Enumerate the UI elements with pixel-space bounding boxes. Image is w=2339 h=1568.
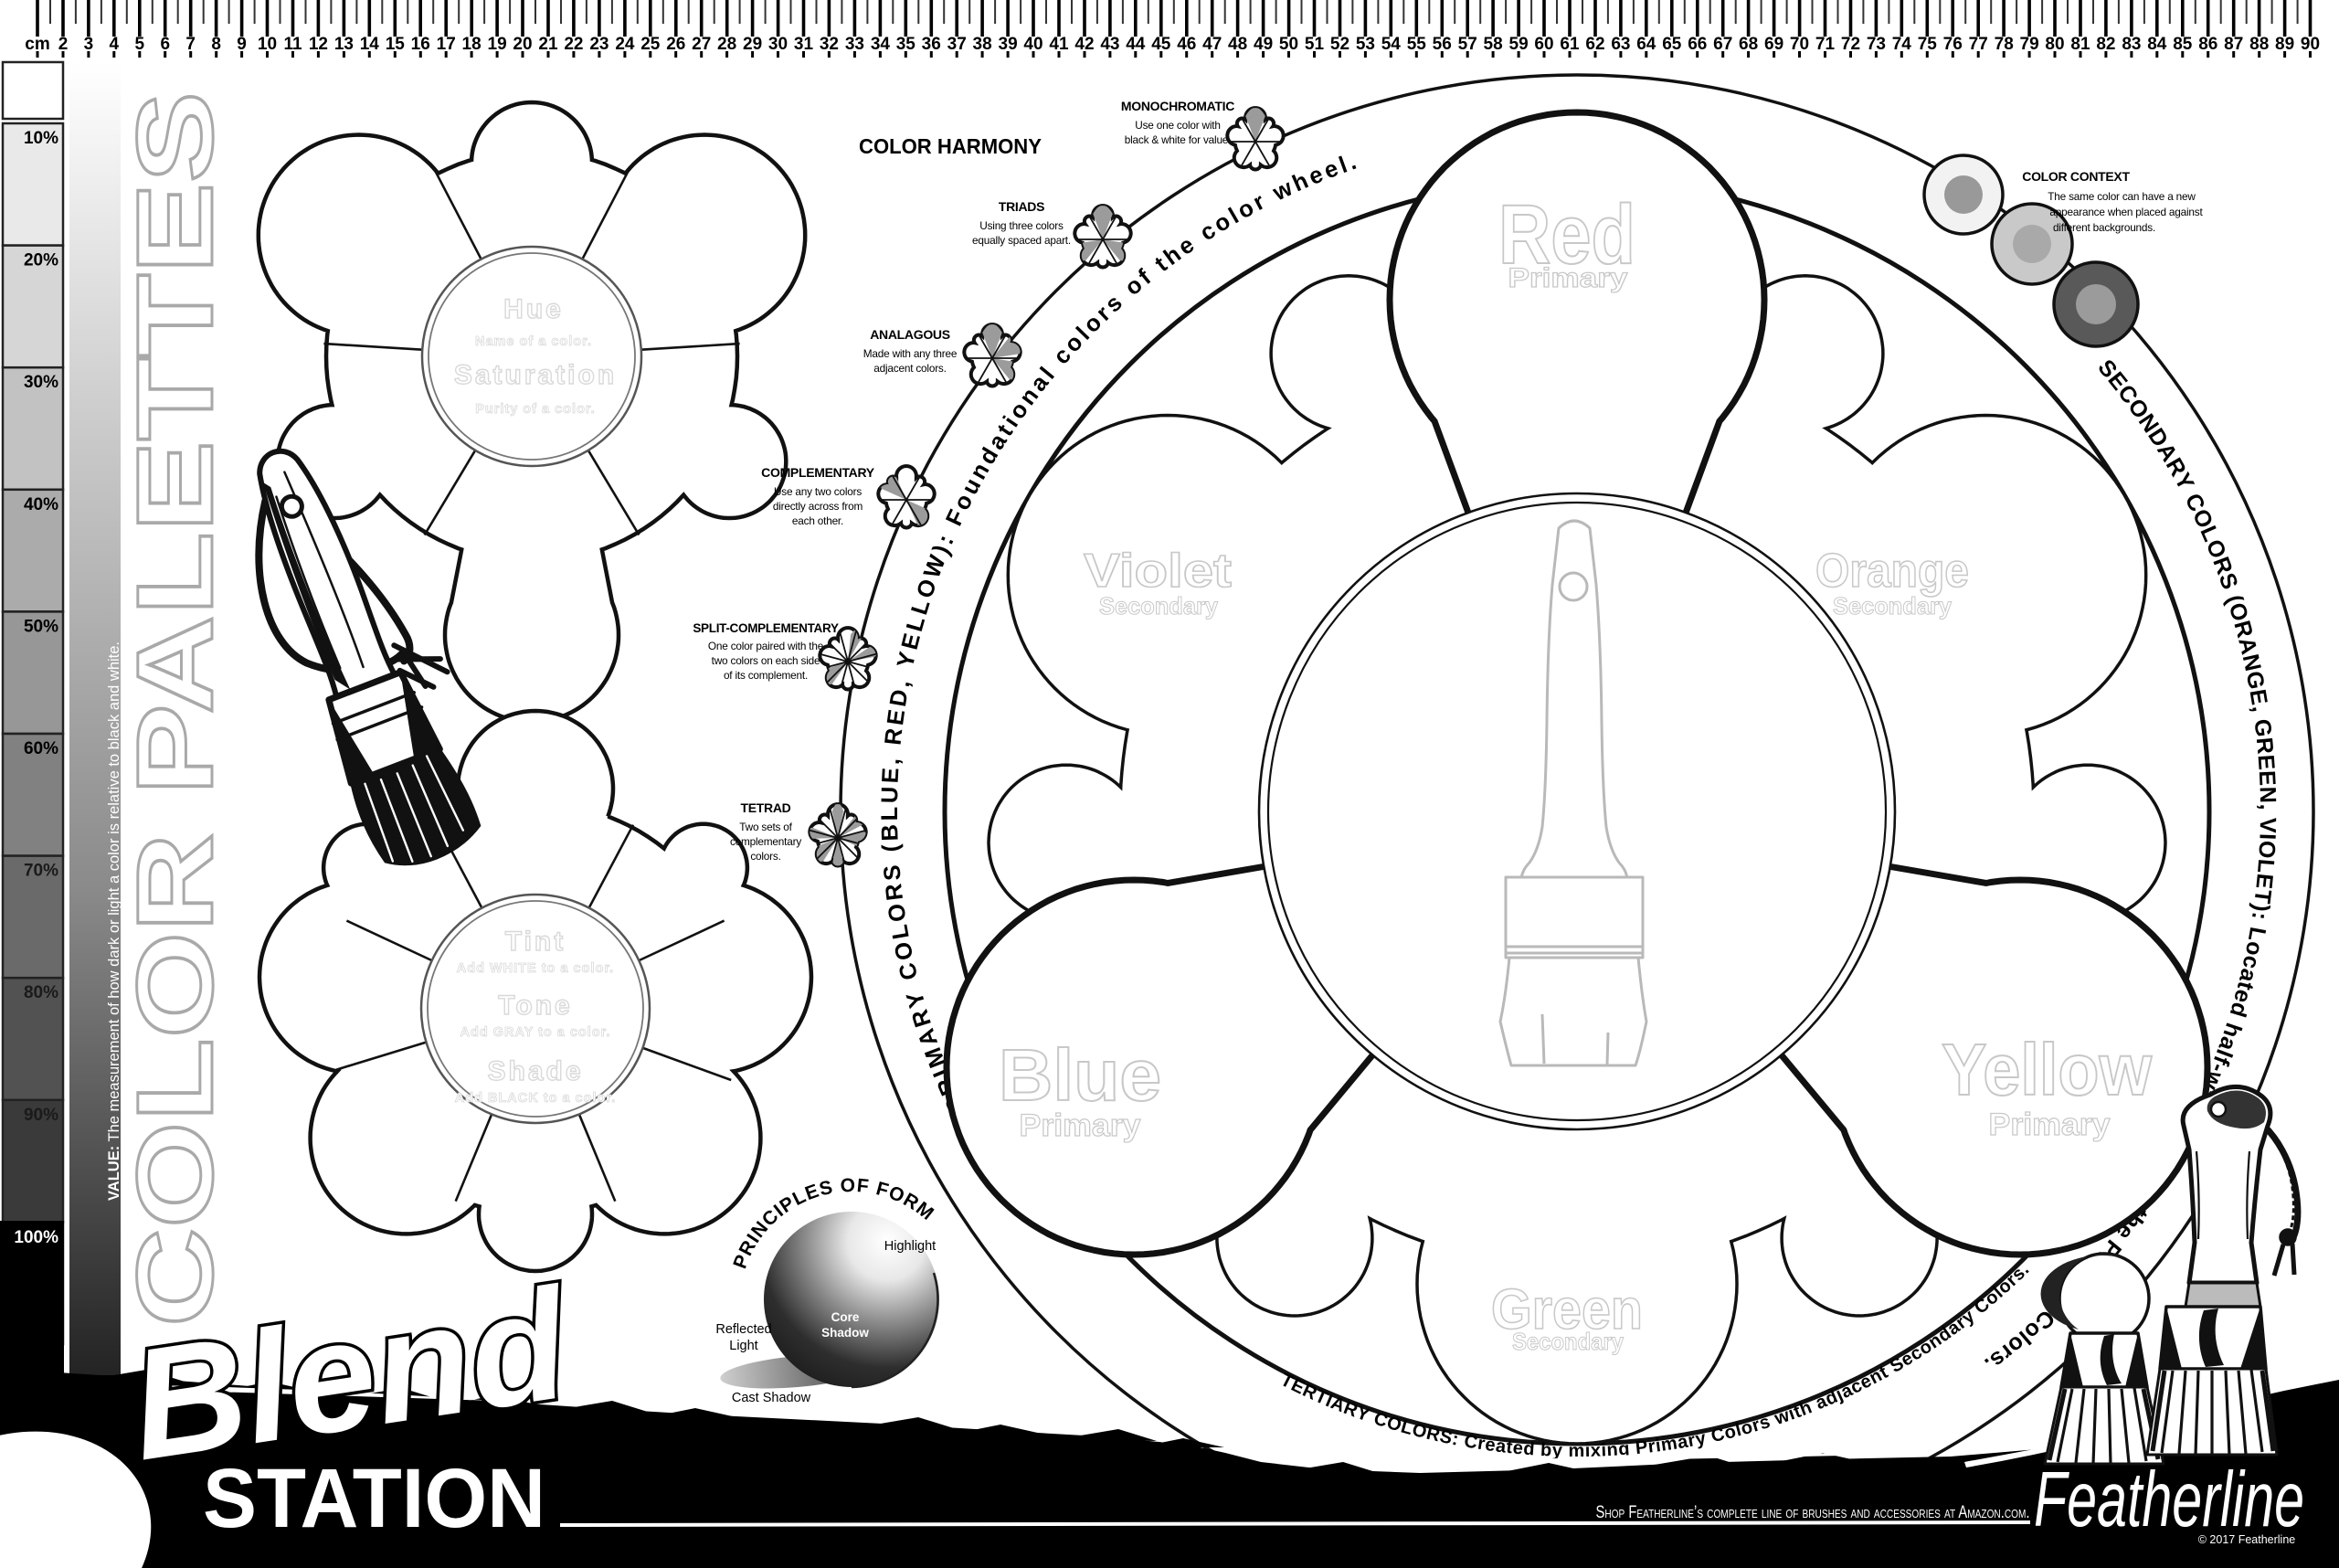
svg-text:O: O bbox=[884, 902, 912, 924]
svg-text:50: 50 bbox=[1279, 35, 1298, 54]
svg-text:N: N bbox=[2255, 786, 2281, 803]
svg-text:Primary: Primary bbox=[1989, 1107, 2111, 1142]
svg-text:,: , bbox=[2255, 803, 2281, 810]
svg-text:46: 46 bbox=[1177, 35, 1196, 54]
svg-text:43: 43 bbox=[1100, 35, 1119, 54]
svg-text:each other.: each other. bbox=[792, 514, 843, 527]
svg-text:B: B bbox=[877, 824, 904, 842]
svg-text:U: U bbox=[877, 786, 903, 803]
svg-text:54: 54 bbox=[1381, 35, 1402, 54]
svg-text:Highlight: Highlight bbox=[884, 1239, 936, 1254]
svg-text:85: 85 bbox=[2173, 35, 2193, 54]
svg-text:69: 69 bbox=[1764, 35, 1783, 54]
svg-text:12: 12 bbox=[309, 35, 328, 54]
svg-text:COLOR HARMONY: COLOR HARMONY bbox=[859, 134, 1042, 158]
svg-text:63: 63 bbox=[1611, 35, 1630, 54]
svg-text:62: 62 bbox=[1585, 35, 1604, 54]
svg-text:MONOCHROMATIC: MONOCHROMATIC bbox=[1121, 99, 1234, 113]
svg-text:59: 59 bbox=[1509, 35, 1529, 54]
svg-text:56: 56 bbox=[1433, 35, 1452, 54]
svg-text:E: E bbox=[878, 767, 905, 783]
svg-text:Add BLACK to a color.: Add BLACK to a color. bbox=[455, 1091, 616, 1106]
svg-text:Yellow: Yellow bbox=[1942, 1029, 2153, 1110]
svg-text:30: 30 bbox=[768, 35, 788, 54]
svg-text:V: V bbox=[2255, 818, 2281, 834]
svg-text:R: R bbox=[881, 727, 908, 747]
svg-text:SPLIT-COMPLEMENTARY: SPLIT-COMPLEMENTARY bbox=[693, 621, 839, 635]
svg-text:Add WHITE to a color.: Add WHITE to a color. bbox=[457, 961, 614, 976]
svg-text:90%: 90% bbox=[24, 1106, 58, 1125]
svg-text:70: 70 bbox=[1790, 35, 1809, 54]
svg-text:68: 68 bbox=[1739, 35, 1758, 54]
svg-text:64: 64 bbox=[1636, 35, 1656, 54]
svg-text:Secondary: Secondary bbox=[1833, 592, 1953, 620]
svg-text:60%: 60% bbox=[24, 739, 58, 758]
svg-text:32: 32 bbox=[820, 35, 839, 54]
svg-text:67: 67 bbox=[1713, 35, 1732, 54]
svg-text:E: E bbox=[2253, 754, 2280, 771]
svg-text:79: 79 bbox=[2020, 35, 2039, 54]
svg-text:50%: 50% bbox=[24, 617, 58, 636]
svg-text:Tone: Tone bbox=[498, 991, 572, 1021]
svg-text:COLOR CONTEXT: COLOR CONTEXT bbox=[2022, 169, 2130, 184]
svg-text:equally spaced apart.: equally spaced apart. bbox=[972, 234, 1071, 247]
svg-text:75: 75 bbox=[1918, 35, 1938, 54]
svg-text:37: 37 bbox=[947, 35, 967, 54]
svg-text:black & white for value.: black & white for value. bbox=[1125, 133, 1232, 146]
svg-text:90: 90 bbox=[2301, 35, 2320, 54]
svg-text:100%: 100% bbox=[14, 1228, 58, 1247]
svg-text:5: 5 bbox=[135, 35, 145, 54]
svg-text:d: d bbox=[1523, 1439, 1536, 1460]
svg-text:21: 21 bbox=[538, 35, 558, 54]
svg-text:Made with any three: Made with any three bbox=[863, 347, 958, 360]
svg-text:41: 41 bbox=[1049, 35, 1069, 54]
svg-text:Shade: Shade bbox=[487, 1056, 583, 1086]
svg-text:15: 15 bbox=[386, 35, 406, 54]
svg-text:19: 19 bbox=[488, 35, 507, 54]
svg-text:S: S bbox=[879, 863, 905, 881]
svg-text:TETRAD: TETRAD bbox=[741, 800, 791, 815]
svg-text:34: 34 bbox=[871, 35, 891, 54]
svg-text:87: 87 bbox=[2224, 35, 2243, 54]
svg-text:E: E bbox=[2250, 873, 2278, 890]
svg-text:26: 26 bbox=[666, 35, 685, 54]
svg-text:36: 36 bbox=[922, 35, 941, 54]
svg-text:31: 31 bbox=[794, 35, 814, 54]
svg-text:y: y bbox=[1551, 1441, 1563, 1461]
svg-text:Secondary: Secondary bbox=[1512, 1328, 1624, 1355]
svg-text:COLOR PALETTES: COLOR PALETTES bbox=[115, 91, 236, 1327]
svg-text:Featherline: Featherline bbox=[2034, 1457, 2304, 1543]
svg-text:7: 7 bbox=[185, 35, 196, 54]
svg-text:58: 58 bbox=[1484, 35, 1503, 54]
svg-text:20%: 20% bbox=[24, 251, 58, 270]
svg-text:80: 80 bbox=[2045, 35, 2064, 54]
svg-text:R: R bbox=[881, 883, 908, 903]
svg-text:Primary: Primary bbox=[1508, 263, 1628, 293]
svg-text:COMPLEMENTARY: COMPLEMENTARY bbox=[761, 465, 875, 480]
svg-text:TRIADS: TRIADS bbox=[999, 199, 1044, 214]
svg-text:F: F bbox=[856, 1175, 870, 1197]
svg-text:10: 10 bbox=[258, 35, 277, 54]
svg-text:G: G bbox=[2249, 717, 2276, 738]
svg-text:48: 48 bbox=[1228, 35, 1247, 54]
svg-text:27: 27 bbox=[692, 35, 711, 54]
svg-text:3: 3 bbox=[84, 35, 94, 54]
svg-text:Violet: Violet bbox=[1084, 545, 1232, 598]
svg-text:Use any two colors: Use any two colors bbox=[774, 485, 862, 498]
svg-text:88: 88 bbox=[2249, 35, 2269, 54]
svg-text:33: 33 bbox=[845, 35, 864, 54]
svg-text:Saturation: Saturation bbox=[454, 360, 617, 390]
svg-text:52: 52 bbox=[1330, 35, 1349, 54]
svg-text:44: 44 bbox=[1126, 35, 1146, 54]
svg-text:Use one color with: Use one color with bbox=[1135, 119, 1220, 132]
svg-text:51: 51 bbox=[1305, 35, 1325, 54]
svg-text:45: 45 bbox=[1151, 35, 1171, 54]
svg-text:two colors on each side: two colors on each side bbox=[712, 654, 820, 667]
svg-text:47: 47 bbox=[1202, 35, 1222, 54]
svg-text:66: 66 bbox=[1688, 35, 1707, 54]
svg-text:Shop Featherline’s complete li: Shop Featherline’s complete line of brus… bbox=[1596, 1503, 2030, 1522]
svg-text:73: 73 bbox=[1867, 35, 1886, 54]
svg-text:L: L bbox=[877, 807, 903, 821]
svg-text:16: 16 bbox=[411, 35, 430, 54]
svg-text:Orange: Orange bbox=[1815, 545, 1969, 598]
svg-text:Reflected: Reflected bbox=[715, 1322, 771, 1337]
svg-text:One color paired with the: One color paired with the bbox=[708, 640, 824, 652]
svg-text:10%: 10% bbox=[24, 129, 58, 148]
svg-text:Primary: Primary bbox=[1020, 1108, 1141, 1143]
svg-text:appearance when placed against: appearance when placed against bbox=[2049, 206, 2203, 218]
svg-text:53: 53 bbox=[1356, 35, 1375, 54]
svg-text:38: 38 bbox=[973, 35, 992, 54]
svg-text:29: 29 bbox=[743, 35, 762, 54]
svg-text:70%: 70% bbox=[24, 862, 58, 881]
svg-text:24: 24 bbox=[615, 35, 635, 54]
svg-text:6: 6 bbox=[161, 35, 171, 54]
svg-text:55: 55 bbox=[1407, 35, 1427, 54]
svg-text:40: 40 bbox=[1023, 35, 1042, 54]
svg-text:40%: 40% bbox=[24, 495, 58, 514]
svg-text:b: b bbox=[1540, 1440, 1552, 1461]
svg-text:61: 61 bbox=[1560, 35, 1580, 54]
svg-text:71: 71 bbox=[1815, 35, 1836, 54]
svg-text:22: 22 bbox=[564, 35, 583, 54]
svg-text:77: 77 bbox=[1969, 35, 1988, 54]
svg-text:Two sets of: Two sets of bbox=[739, 821, 792, 833]
svg-text:49: 49 bbox=[1254, 35, 1273, 54]
svg-text:Add GRAY to a color.: Add GRAY to a color. bbox=[460, 1025, 610, 1040]
svg-text:74: 74 bbox=[1892, 35, 1912, 54]
svg-text:cm: cm bbox=[25, 35, 49, 54]
svg-text:R: R bbox=[2251, 736, 2279, 756]
svg-text:8: 8 bbox=[211, 35, 221, 54]
svg-text:72: 72 bbox=[1841, 35, 1860, 54]
svg-text:23: 23 bbox=[589, 35, 609, 54]
svg-text:14: 14 bbox=[360, 35, 380, 54]
svg-text:E: E bbox=[2254, 770, 2281, 787]
svg-text:of its complement.: of its complement. bbox=[724, 669, 808, 682]
svg-text:different backgrounds.: different backgrounds. bbox=[2053, 221, 2155, 234]
svg-text:83: 83 bbox=[2122, 35, 2141, 54]
svg-text:colors.: colors. bbox=[750, 850, 780, 863]
svg-text:O: O bbox=[2253, 840, 2280, 859]
svg-text:39: 39 bbox=[999, 35, 1018, 54]
svg-text:84: 84 bbox=[2147, 35, 2167, 54]
svg-text:Tint: Tint bbox=[505, 927, 566, 957]
svg-text:The same color can have a new: The same color can have a new bbox=[2048, 190, 2196, 203]
svg-text:9: 9 bbox=[237, 35, 247, 54]
svg-text:ANALAGOUS: ANALAGOUS bbox=[870, 327, 950, 342]
svg-text:42: 42 bbox=[1074, 35, 1094, 54]
svg-text:© 2017 Featherline: © 2017 Featherline bbox=[2198, 1533, 2296, 1546]
svg-text:L: L bbox=[2252, 858, 2279, 874]
svg-text:Using three colors: Using three colors bbox=[979, 219, 1064, 232]
svg-text:18: 18 bbox=[462, 35, 482, 54]
svg-text:57: 57 bbox=[1458, 35, 1477, 54]
svg-text:adjacent colors.: adjacent colors. bbox=[873, 362, 946, 375]
svg-text:13: 13 bbox=[334, 35, 354, 54]
svg-text:80%: 80% bbox=[24, 983, 58, 1002]
svg-text:30%: 30% bbox=[24, 373, 58, 392]
svg-text:81: 81 bbox=[2070, 35, 2090, 54]
svg-text:Name of a color.: Name of a color. bbox=[475, 334, 592, 349]
svg-text:2: 2 bbox=[58, 35, 69, 54]
svg-text:Blue: Blue bbox=[999, 1034, 1161, 1116]
svg-text:complementary: complementary bbox=[730, 835, 801, 848]
svg-text:17: 17 bbox=[437, 35, 456, 54]
svg-text:76: 76 bbox=[1943, 35, 1963, 54]
svg-text:STATION: STATION bbox=[203, 1452, 545, 1545]
svg-text:35: 35 bbox=[896, 35, 916, 54]
svg-text:Secondary: Secondary bbox=[1099, 592, 1219, 620]
svg-text:89: 89 bbox=[2275, 35, 2294, 54]
svg-text:Hue: Hue bbox=[503, 294, 564, 324]
svg-text:25: 25 bbox=[640, 35, 661, 54]
svg-text:O: O bbox=[840, 1175, 855, 1197]
svg-text:78: 78 bbox=[1995, 35, 2014, 54]
svg-text:20: 20 bbox=[513, 35, 532, 54]
svg-text:65: 65 bbox=[1662, 35, 1682, 54]
svg-text:60: 60 bbox=[1534, 35, 1553, 54]
svg-text:Light: Light bbox=[729, 1339, 757, 1353]
svg-text:82: 82 bbox=[2096, 35, 2115, 54]
svg-text:directly across from: directly across from bbox=[773, 500, 863, 513]
svg-text:28: 28 bbox=[717, 35, 736, 54]
svg-text:Core: Core bbox=[831, 1310, 860, 1324]
svg-text:4: 4 bbox=[110, 35, 120, 54]
svg-text:Shadow: Shadow bbox=[821, 1326, 869, 1340]
svg-text:11: 11 bbox=[283, 35, 302, 54]
svg-text:Purity of a color.: Purity of a color. bbox=[475, 402, 596, 417]
svg-text:86: 86 bbox=[2198, 35, 2217, 54]
svg-text:Cast Shadow: Cast Shadow bbox=[732, 1391, 811, 1405]
